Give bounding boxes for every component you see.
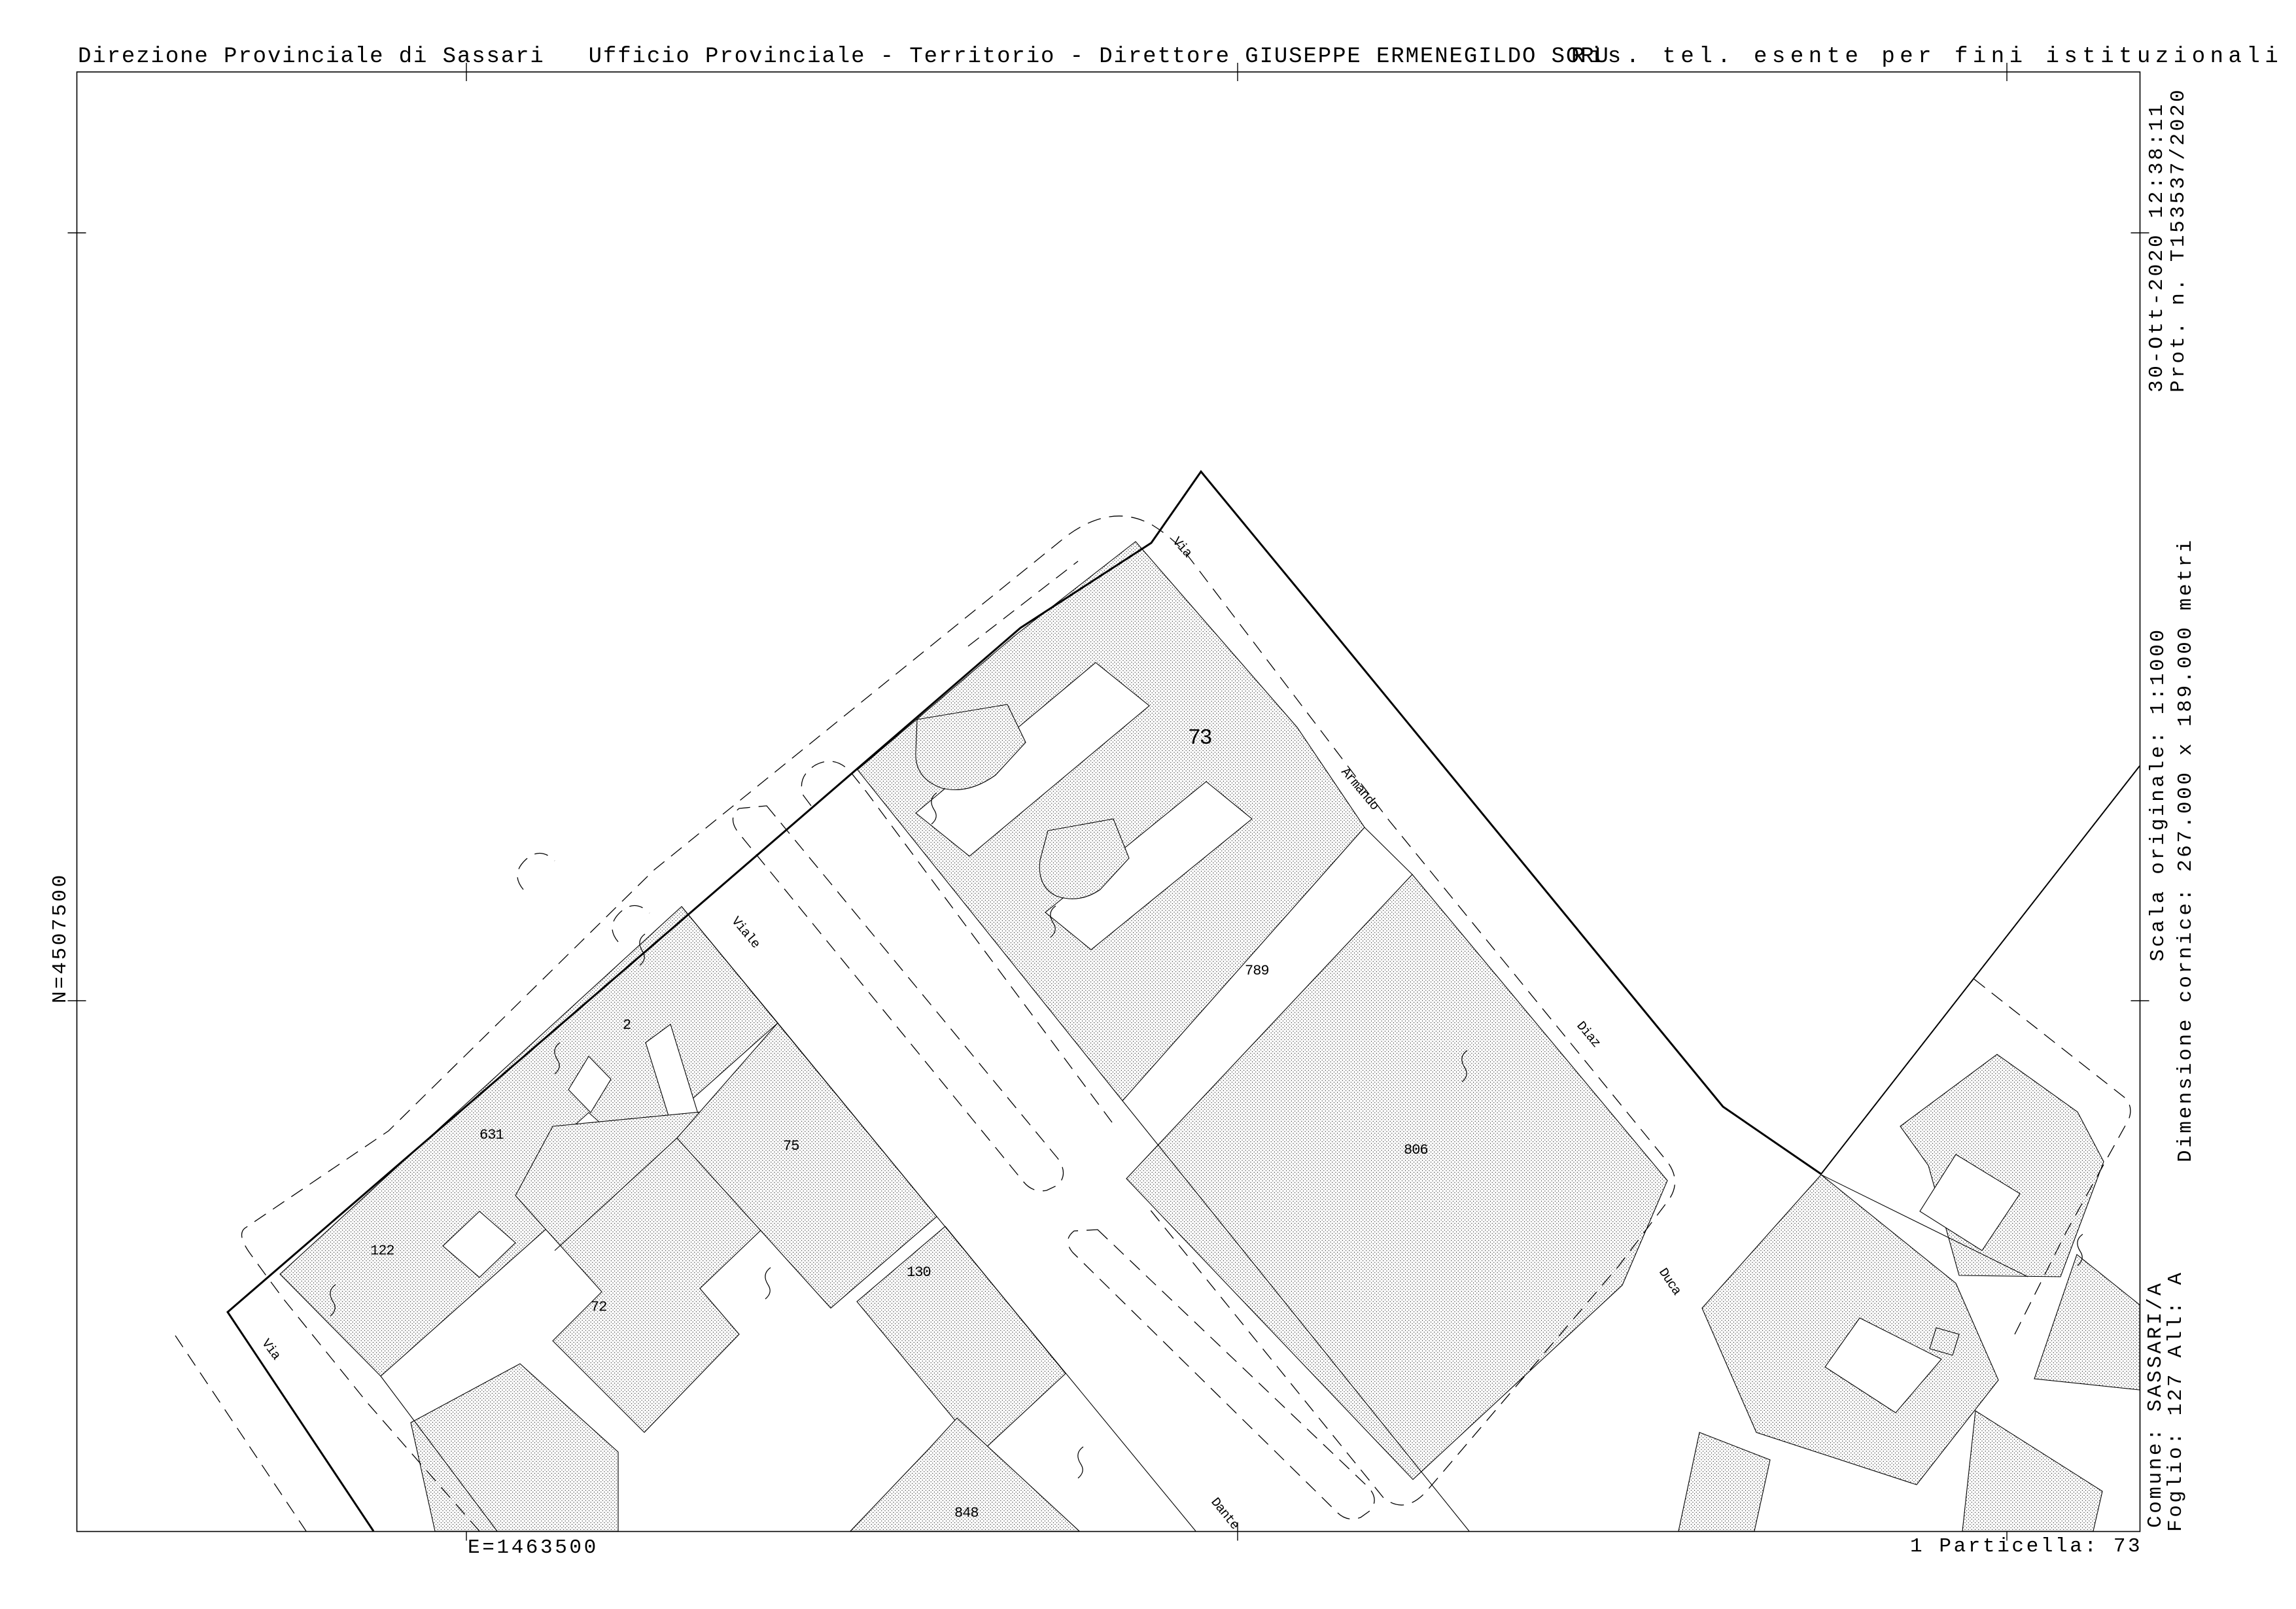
svg-text:Foglio: 127 All: A: Foglio: 127 All: A: [2165, 1270, 2187, 1532]
svg-text:Prot. n. T153537/2020: Prot. n. T153537/2020: [2167, 88, 2190, 392]
svg-text:1 Particella: 73: 1 Particella: 73: [1910, 1535, 2142, 1558]
svg-text:73: 73: [1188, 726, 1211, 750]
svg-text:789: 789: [1245, 963, 1269, 979]
svg-text:Ris. tel. esente per fini isti: Ris. tel. esente per fini istituzionali: [1571, 44, 2283, 69]
svg-text:75: 75: [783, 1138, 799, 1154]
svg-text:Scala originale: 1:1000: Scala originale: 1:1000: [2147, 627, 2170, 961]
svg-text:30-Ott-2020 12:38:11: 30-Ott-2020 12:38:11: [2146, 102, 2168, 392]
svg-text:Direzione Provinciale di Sassa: Direzione Provinciale di Sassari Ufficio…: [78, 44, 1610, 69]
svg-text:N=4507500: N=4507500: [49, 873, 72, 1003]
svg-text:Dimensione cornice: 267.000 x: Dimensione cornice: 267.000 x 189.000 me…: [2174, 538, 2197, 1162]
svg-text:2: 2: [623, 1017, 631, 1033]
svg-text:848: 848: [954, 1505, 979, 1521]
svg-text:E=1463500: E=1463500: [468, 1536, 599, 1559]
svg-text:631: 631: [479, 1127, 504, 1143]
svg-text:806: 806: [1404, 1142, 1428, 1158]
svg-text:Comune: SASSARI/A: Comune: SASSARI/A: [2144, 1281, 2167, 1528]
svg-text:72: 72: [591, 1299, 606, 1315]
svg-text:122: 122: [370, 1243, 394, 1259]
svg-text:130: 130: [907, 1264, 931, 1281]
